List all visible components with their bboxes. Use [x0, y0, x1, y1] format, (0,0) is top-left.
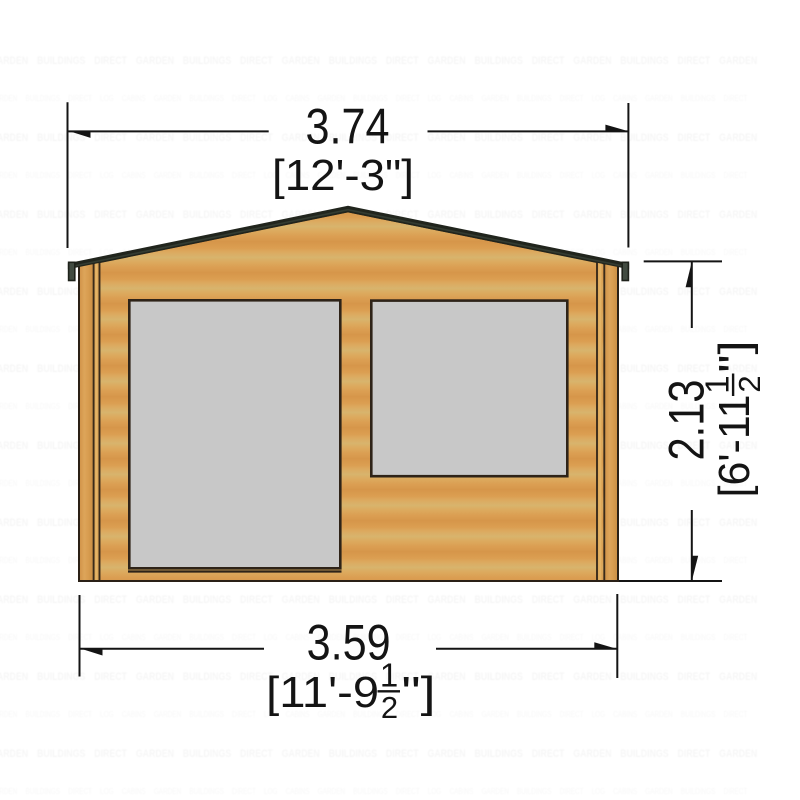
svg-text:2: 2: [381, 690, 398, 725]
svg-text:[6'-11: [6'-11: [710, 395, 759, 498]
svg-text:[12'-3"]: [12'-3"]: [272, 151, 414, 200]
svg-text:1: 1: [380, 657, 398, 694]
svg-text:"]: "]: [402, 668, 436, 717]
svg-text:3.74: 3.74: [306, 99, 390, 155]
svg-text:3.59: 3.59: [307, 615, 391, 671]
svg-text:1: 1: [698, 375, 735, 393]
svg-text:"]: "]: [710, 341, 759, 373]
svg-text:[11'-9: [11'-9: [266, 668, 379, 717]
svg-text:2: 2: [732, 375, 767, 392]
